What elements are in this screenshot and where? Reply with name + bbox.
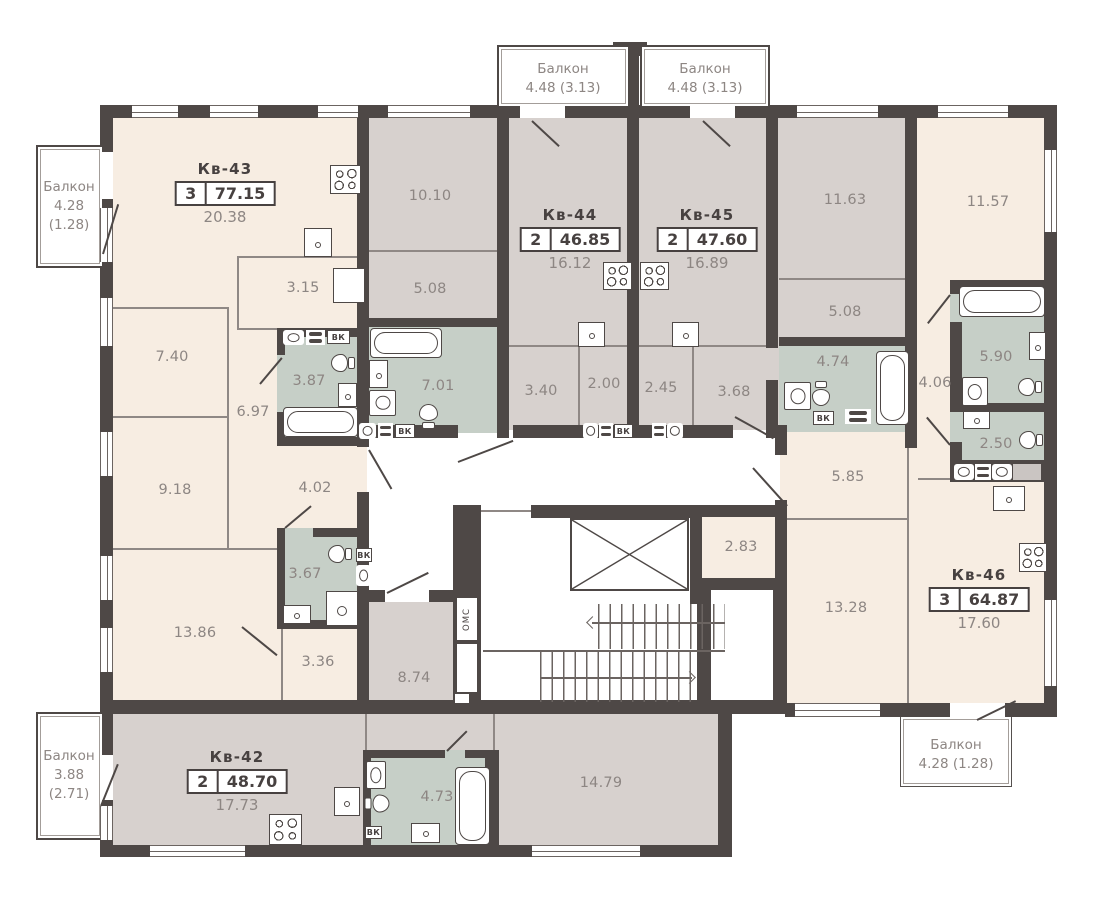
toilet-icon [812, 381, 830, 406]
room-area-label: 3.68 [717, 384, 750, 400]
vk-riser-label: ВК [395, 424, 415, 438]
apartment-info-kv42: Кв-42 2 48.70 17.73 [187, 748, 288, 814]
room-area-label: 5.08 [413, 281, 446, 297]
room-area-label: 4.74 [816, 354, 849, 370]
partition-line [281, 628, 283, 700]
apartment-info-kv43: Кв-43 3 77.15 20.38 [175, 160, 276, 226]
wall [775, 425, 787, 455]
partition-line [779, 278, 905, 280]
toilet-icon [1018, 378, 1042, 396]
apartment-title: Кв-43 [175, 160, 276, 178]
room-area-label: 14.79 [580, 775, 623, 791]
washing-machine-icon [845, 409, 871, 424]
washing-machine-icon [954, 464, 974, 480]
partition-line [918, 478, 950, 480]
vk-riser-label: ВК [356, 548, 372, 562]
wall [277, 437, 361, 446]
oms-shaft: ОМС [457, 598, 477, 640]
washing-machine-icon [962, 377, 988, 406]
wall [369, 318, 497, 327]
room-area-label: 2.83 [724, 539, 757, 555]
balcony-area: 4.48 (3.13) [526, 79, 601, 98]
washing-machine-icon [356, 565, 371, 586]
sink-icon [304, 228, 332, 257]
washing-machine-icon [378, 423, 393, 439]
wall [363, 750, 445, 758]
wall [702, 505, 775, 517]
sink-icon [334, 787, 360, 816]
wall [950, 322, 962, 412]
wall [531, 505, 702, 518]
stairs-upper-flight [598, 604, 725, 649]
vk-riser-label: ВК [813, 411, 834, 425]
wall [690, 578, 787, 590]
elevator-cross-icon [572, 520, 687, 589]
balcony-label: Балкон 4.48 (3.13) [526, 60, 601, 98]
toilet-icon [328, 545, 352, 563]
total-area: 47.60 [689, 229, 756, 250]
wall [775, 500, 787, 580]
washing-machine-icon [366, 761, 386, 789]
toilet-icon [419, 404, 438, 429]
washing-machine-icon [992, 464, 1012, 480]
sink-icon [369, 360, 388, 388]
apartment-title: Кв-45 [657, 206, 758, 224]
washing-machine-icon [975, 464, 991, 480]
wall [357, 492, 369, 704]
washing-machine-icon [784, 382, 811, 410]
partition-line [113, 307, 227, 309]
room-area-label: 5.85 [831, 469, 864, 485]
wall [429, 590, 453, 602]
washing-machine-icon [599, 423, 613, 439]
room-area-label: 3.87 [292, 373, 325, 389]
apartment-title: Кв-46 [929, 566, 1030, 584]
room-area-label: 3.40 [524, 383, 557, 399]
shower-icon [326, 591, 358, 626]
main-room-area: 17.60 [929, 614, 1030, 632]
toilet-icon [1019, 431, 1043, 449]
total-area: 48.70 [219, 771, 286, 792]
balcony-name: Балкон [43, 747, 94, 766]
sink-icon [963, 411, 990, 429]
window [532, 845, 640, 857]
rooms-count: 2 [189, 771, 219, 792]
bathtub-icon [455, 767, 490, 845]
elevator-shaft [570, 518, 689, 591]
bathtub-icon [370, 328, 442, 358]
partition-line [227, 307, 229, 548]
vk-riser-label: ВК [365, 826, 382, 839]
balcony-label: Балкон 4.28 (1.28) [43, 178, 94, 235]
wall [497, 118, 509, 438]
door-leaf [368, 450, 392, 490]
sink-icon [672, 322, 699, 347]
window [132, 105, 178, 118]
partition-line [237, 256, 357, 258]
balcony-area: 4.48 (3.13) [668, 79, 743, 98]
partition-line [578, 345, 580, 425]
wall [369, 590, 385, 602]
total-area: 46.85 [552, 229, 619, 250]
toilet-icon [365, 795, 390, 813]
apartment-spec-box: 3 64.87 [929, 587, 1030, 612]
sink-icon [993, 486, 1025, 511]
stairs-direction-arrow [586, 616, 599, 629]
apartment-title: Кв-42 [187, 748, 288, 766]
room-area-label: 8.74 [397, 670, 430, 686]
window [100, 298, 113, 346]
vk-riser-label: ВК [327, 330, 350, 344]
balcony-area: 4.28 [43, 197, 94, 216]
stairs-direction-line [540, 677, 692, 679]
room-area-label: 9.18 [158, 482, 191, 498]
washing-machine-icon [652, 423, 666, 439]
sink-icon [1029, 332, 1046, 360]
apartment-info-kv44: Кв-44 2 46.85 16.12 [520, 206, 621, 272]
room-area-label: 2.00 [587, 376, 620, 392]
balcony-name: Балкон [919, 736, 994, 755]
washing-machine-icon [369, 390, 396, 416]
floor-plan: ОМС ВК ВК ВК ВК ВК [0, 0, 1115, 900]
room-area-label: 4.73 [420, 789, 453, 805]
wall [313, 528, 361, 537]
window [797, 105, 878, 118]
stove-icon [330, 165, 361, 194]
rooms-count: 3 [931, 589, 961, 610]
room-area-label: 3.67 [288, 566, 321, 582]
apartment-spec-box: 3 77.15 [175, 181, 276, 206]
wall [779, 337, 905, 346]
window [210, 105, 258, 118]
partition-line [692, 345, 694, 425]
balcony-label: Балкон 3.88 (2.71) [43, 747, 94, 804]
washing-machine-icon [306, 330, 325, 345]
apartment-info-kv46: Кв-46 3 64.87 17.60 [929, 566, 1030, 632]
counter-icon [1013, 464, 1041, 480]
main-room-area: 17.73 [187, 796, 288, 814]
balcony-label: Балкон 4.48 (3.13) [668, 60, 743, 98]
sink-icon [578, 322, 605, 347]
room-area-label: 4.02 [298, 480, 331, 496]
service-shaft-small [455, 694, 469, 703]
window [100, 806, 113, 840]
room-area-label: 10.10 [409, 188, 452, 204]
wardrobe-icon [333, 268, 365, 303]
partition-line [113, 416, 227, 418]
room-area-label: 11.57 [967, 194, 1010, 210]
partition-line [509, 345, 627, 347]
room-area-label: 7.40 [155, 349, 188, 365]
partition-line [237, 328, 277, 330]
room-area-label: 5.08 [828, 304, 861, 320]
balcony-area: 4.28 (1.28) [919, 755, 994, 774]
total-area: 77.15 [207, 183, 274, 204]
window [938, 105, 1008, 118]
window [795, 703, 880, 717]
bathtub-icon [283, 407, 358, 437]
partition-line [369, 250, 497, 252]
window [388, 105, 470, 118]
sink-icon [411, 823, 440, 843]
sink-icon [283, 605, 311, 624]
apartment-spec-box: 2 46.85 [520, 227, 621, 252]
apartment-spec-box: 2 47.60 [657, 227, 758, 252]
partition-line [237, 256, 239, 330]
wall [465, 750, 493, 758]
washing-machine-icon [583, 423, 598, 439]
door-opening [520, 105, 565, 118]
stairs-direction-line [592, 622, 725, 624]
window [100, 628, 113, 672]
window [1044, 150, 1057, 232]
room-area-label: 3.36 [301, 654, 334, 670]
balcony-area: (1.28) [43, 216, 94, 235]
room-area-label: 13.86 [174, 625, 217, 641]
zone-kv42-hall [369, 602, 453, 705]
main-room-area: 16.89 [657, 254, 758, 272]
room-area-label: 6.97 [236, 404, 269, 420]
bathtub-icon [876, 351, 909, 425]
apartment-spec-box: 2 48.70 [187, 769, 288, 794]
partition-line [787, 518, 907, 520]
rooms-count: 2 [659, 229, 689, 250]
balcony-name: Балкон [43, 178, 94, 197]
wall [766, 118, 778, 348]
room-area-label: 13.28 [825, 600, 868, 616]
window [100, 556, 113, 600]
room-area-label: 11.63 [824, 192, 867, 208]
wall [100, 700, 787, 714]
balcony-area: (2.71) [43, 785, 94, 804]
balcony-area: 3.88 [43, 766, 94, 785]
room-area-label: 2.45 [644, 380, 677, 396]
main-room-area: 16.12 [520, 254, 621, 272]
wall [950, 442, 962, 462]
washing-machine-icon [359, 423, 376, 439]
total-area: 64.87 [961, 589, 1028, 610]
balcony-label: Балкон 4.28 (1.28) [919, 736, 994, 774]
window [318, 105, 358, 118]
stove-icon [269, 814, 302, 845]
window [150, 845, 245, 857]
door-leaf [387, 572, 429, 594]
main-room-area: 20.38 [175, 208, 276, 226]
door-opening [690, 105, 735, 118]
wall [773, 578, 787, 704]
bathtub-icon [959, 286, 1045, 317]
window [100, 432, 113, 476]
stairs-landing-line [483, 650, 725, 652]
door-leaf [458, 440, 514, 463]
rooms-count: 2 [522, 229, 552, 250]
room-area-label: 5.90 [979, 349, 1012, 365]
room-area-label: 7.01 [421, 378, 454, 394]
room-area-label: 2.50 [979, 436, 1012, 452]
partition-line [907, 445, 909, 703]
balcony-name: Балкон [526, 60, 601, 79]
room-area-label: 4.06 [918, 375, 951, 391]
partition-line [639, 345, 766, 347]
vk-riser-label: ВК [614, 424, 633, 438]
oms-shaft-label: ОМС [462, 608, 472, 631]
service-shaft [457, 644, 477, 692]
sink-icon [338, 383, 357, 407]
apartment-title: Кв-44 [520, 206, 621, 224]
balcony-name: Балкон [668, 60, 743, 79]
washing-machine-icon [283, 330, 304, 345]
wall [718, 700, 732, 857]
rooms-count: 3 [177, 183, 207, 204]
window [1044, 600, 1057, 686]
toilet-icon [331, 354, 355, 372]
partition-line [113, 548, 277, 550]
washing-machine-icon [667, 423, 683, 439]
door-opening [100, 152, 113, 199]
apartment-info-kv45: Кв-45 2 47.60 16.89 [657, 206, 758, 272]
room-area-label: 3.15 [286, 280, 319, 296]
